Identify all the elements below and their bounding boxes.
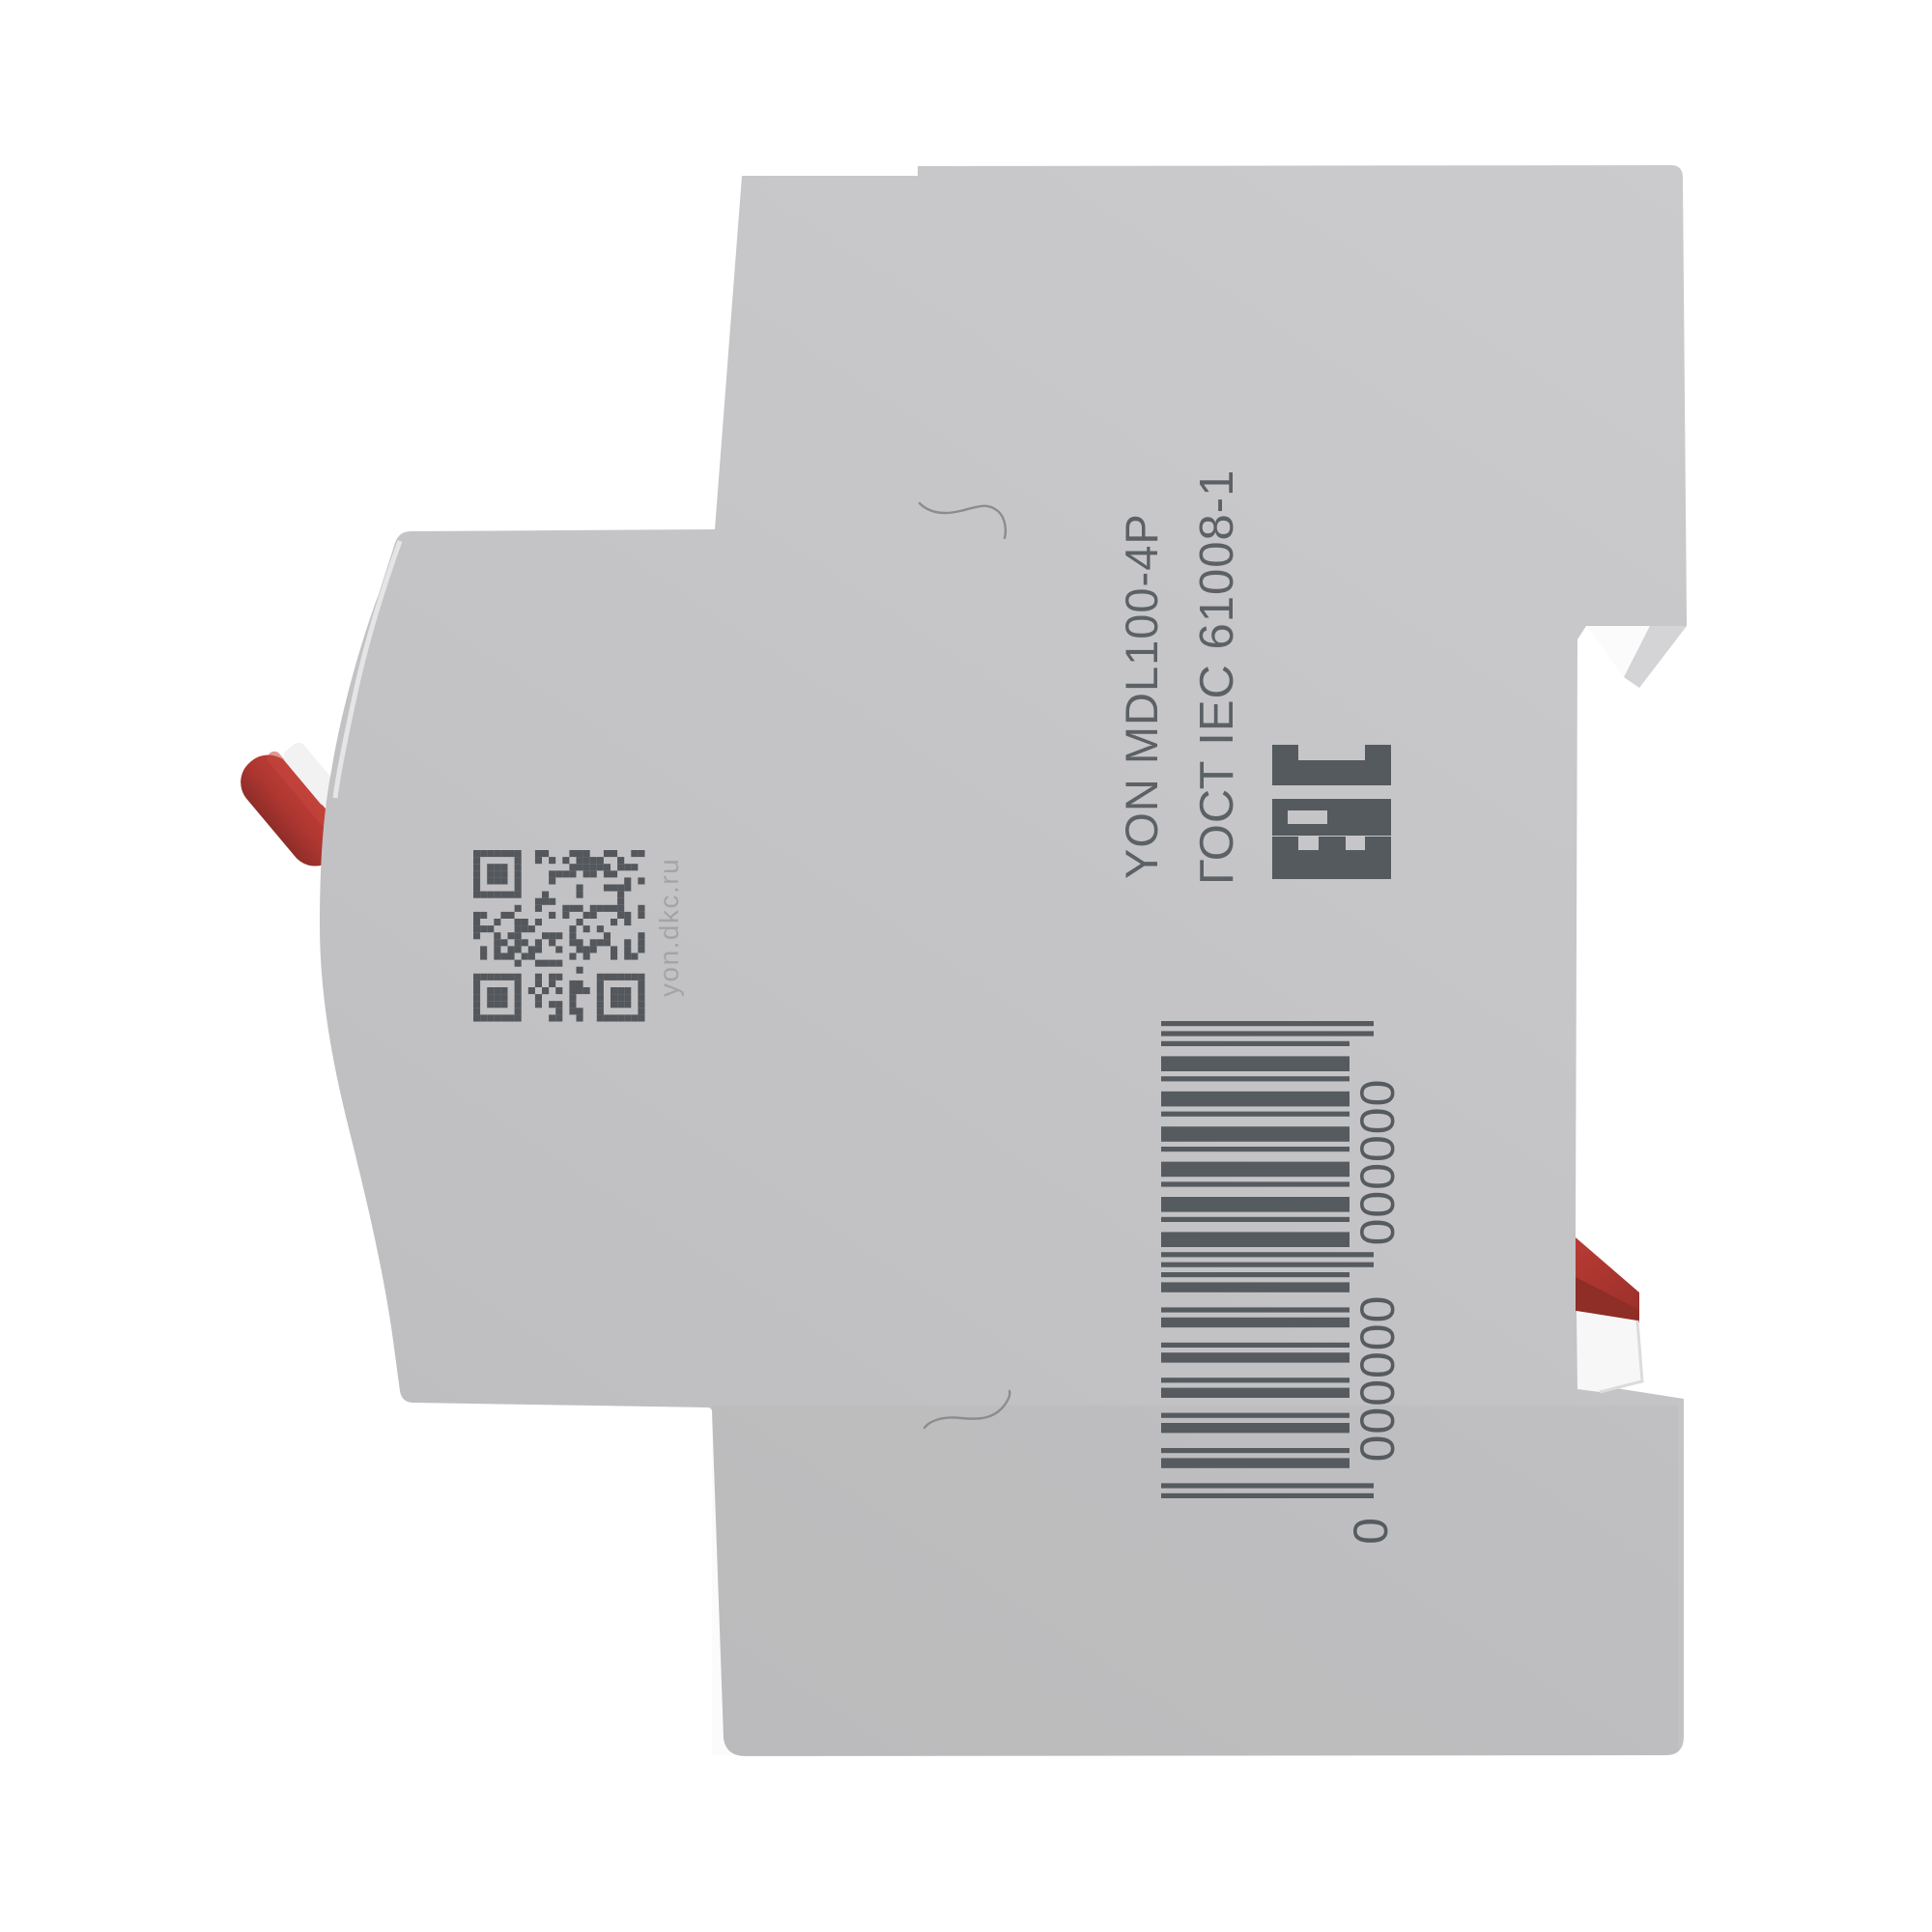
product-photo-stage: YON MDL100-4P ГОСТ IEC 61008-1 yon.dkc.r… (0, 0, 1932, 1932)
lower-block-shading (712, 1406, 1678, 1755)
breaker-side-view: YON MDL100-4P ГОСТ IEC 61008-1 yon.dkc.r… (0, 0, 1932, 1932)
standard-text: ГОСТ IEC 61008-1 (1191, 469, 1243, 885)
barcode-digit-lead: 0 (1344, 1518, 1398, 1545)
barcode-digit-group1: 000000 (1350, 1295, 1405, 1463)
din-clip-red (1576, 1237, 1639, 1322)
din-step-wedge (1586, 626, 1687, 688)
model-text: YON MDL100-4P (1116, 513, 1167, 879)
barcode-digit-group2: 000000 (1350, 1079, 1405, 1246)
eac-logo (1272, 745, 1391, 879)
din-clip-housing (1577, 1311, 1642, 1392)
qr-caption: yon.dkc.ru (654, 858, 684, 997)
